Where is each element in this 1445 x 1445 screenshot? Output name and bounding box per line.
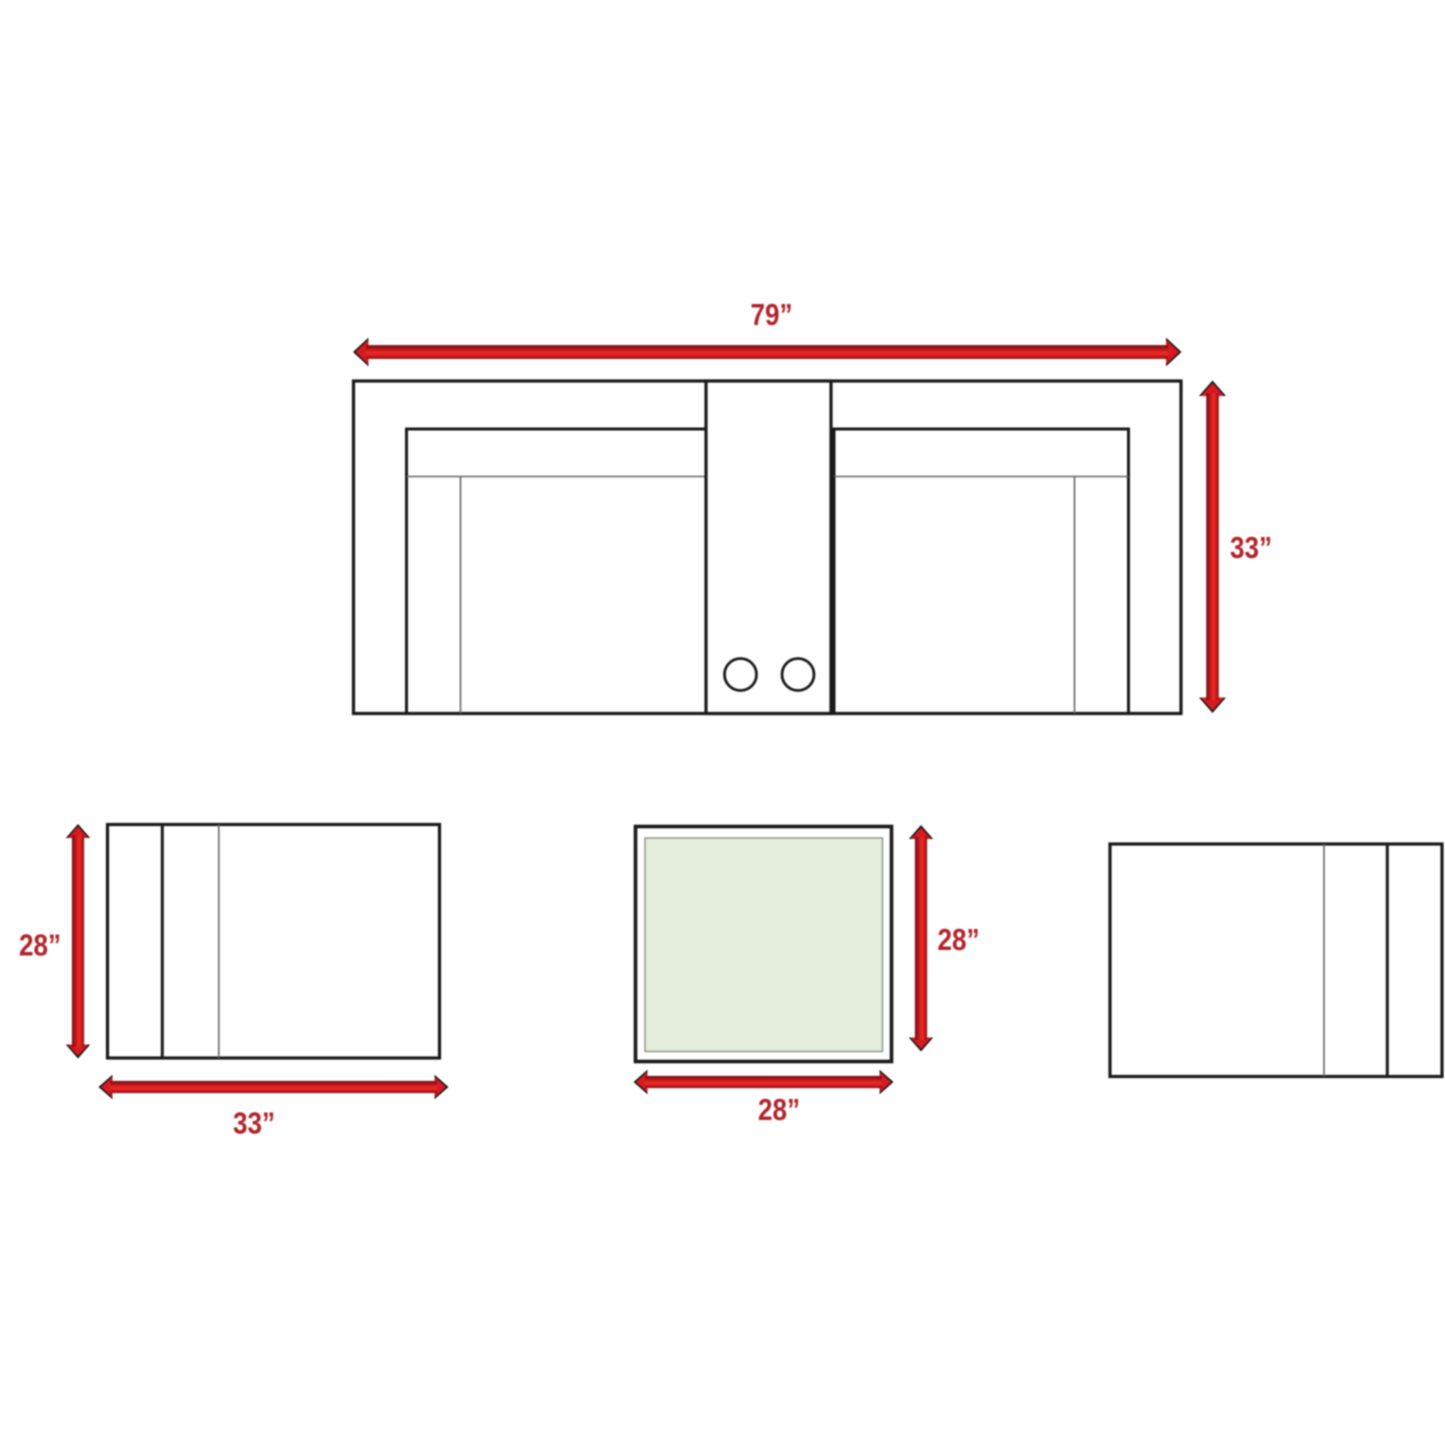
svg-text:33”: 33” xyxy=(1230,530,1272,565)
svg-text:28”: 28” xyxy=(758,1092,800,1127)
svg-text:79”: 79” xyxy=(751,297,793,332)
svg-text:28”: 28” xyxy=(938,922,980,957)
svg-text:33”: 33” xyxy=(233,1106,275,1141)
svg-text:28”: 28” xyxy=(19,928,61,963)
